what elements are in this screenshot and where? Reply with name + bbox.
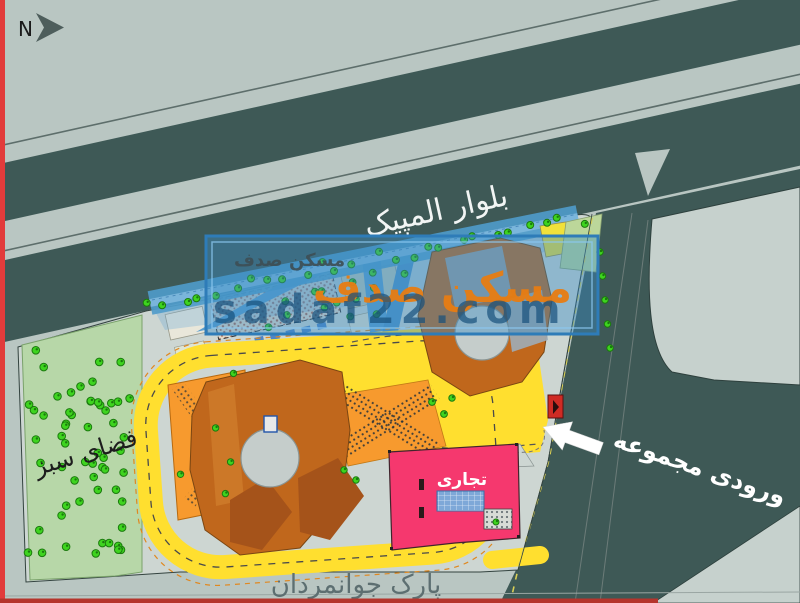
site-plan-map: بلوار المپیک [0, 0, 800, 603]
vestibule-hatch [484, 509, 512, 529]
watermark-url: sadaf22.com [213, 287, 567, 333]
central-courtyard [241, 429, 299, 487]
frame-left [0, 0, 5, 603]
commercial-building: تجاری [388, 443, 520, 550]
entry-mark [419, 479, 424, 490]
commercial-label: تجاری [437, 470, 487, 490]
ring-road-stub [492, 555, 540, 560]
entry-mark [419, 507, 424, 518]
north-label: N [18, 17, 33, 41]
frame-bottom [0, 599, 658, 603]
courtyard-kiosk [264, 416, 277, 432]
corner-parcel [649, 187, 800, 385]
watermark: مسکن صدف مسکن صدف sadaf22.com [206, 236, 598, 334]
central-building [190, 360, 364, 555]
park-label: پارک جوانمردان [271, 570, 442, 600]
skylight-grid [437, 491, 484, 511]
